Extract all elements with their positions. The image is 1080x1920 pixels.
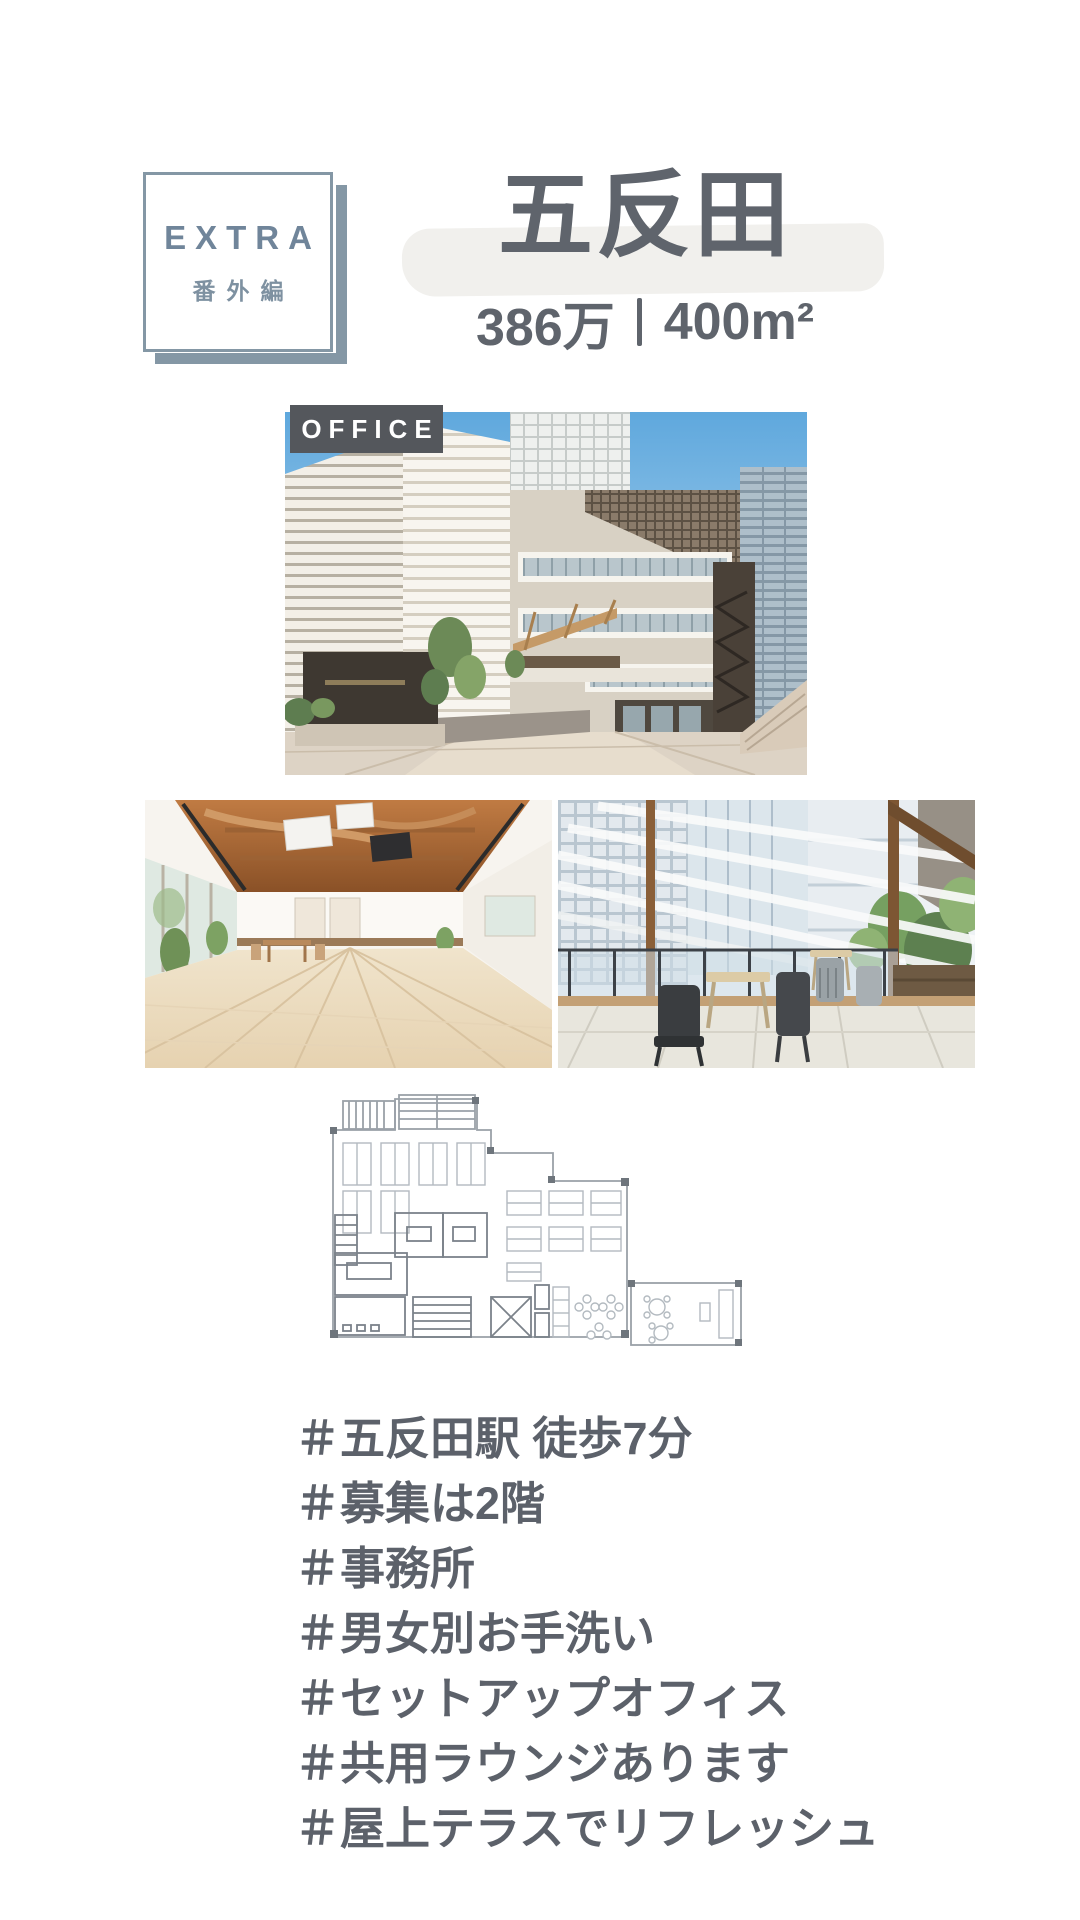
floor-plan — [295, 1085, 750, 1380]
area-value: 400m² — [664, 292, 814, 352]
office-interior-photo — [145, 800, 552, 1068]
real-estate-post: EXTRA 番外編 五反田 386万 400m² OFFICE — [0, 0, 1080, 1920]
hashtag-item: ＃五反田駅 徒歩7分 — [295, 1406, 879, 1471]
terrace-photo — [558, 800, 975, 1068]
page-title: 五反田 — [340, 165, 950, 268]
hashtag-item: ＃事務所 — [295, 1536, 879, 1601]
building-exterior-illustration — [285, 412, 807, 775]
hashtag-item: ＃男女別お手洗い — [295, 1601, 879, 1666]
badge-label-jp: 番外編 — [182, 272, 295, 306]
hashtag-item: ＃屋上テラスでリフレッシュ — [295, 1796, 879, 1861]
building-exterior-photo — [285, 412, 807, 775]
office-tag: OFFICE — [290, 405, 443, 453]
price-area-line: 386万 400m² — [340, 293, 950, 351]
floor-plan-drawing — [295, 1085, 750, 1380]
terrace-illustration — [558, 800, 975, 1068]
price-value: 386万 — [476, 285, 615, 360]
hashtag-item: ＃共用ラウンジあります — [295, 1731, 879, 1796]
badge-shadow-bottom — [155, 353, 347, 364]
extra-badge: EXTRA 番外編 — [143, 172, 333, 352]
office-interior-illustration — [145, 800, 552, 1068]
divider-bar — [637, 298, 642, 346]
badge-label-en: EXTRA — [155, 219, 321, 257]
hashtag-item: ＃セットアップオフィス — [295, 1666, 879, 1731]
hashtag-item: ＃募集は2階 — [295, 1471, 879, 1536]
hashtag-list: ＃五反田駅 徒歩7分 ＃募集は2階 ＃事務所 ＃男女別お手洗い ＃セットアップオ… — [295, 1406, 879, 1861]
badge-box: EXTRA 番外編 — [143, 172, 333, 352]
